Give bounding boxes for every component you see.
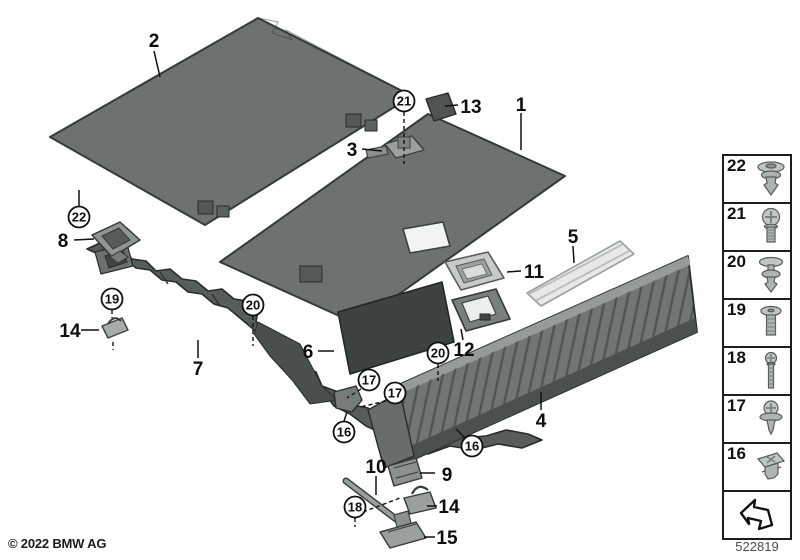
callout-16a-circled[interactable]: 16 <box>334 422 355 443</box>
legend-item-16[interactable]: 16 <box>722 442 792 492</box>
callout-6[interactable]: 6 <box>303 342 314 363</box>
callout-15[interactable]: 15 <box>436 528 458 549</box>
legend-item-18[interactable]: 18 <box>722 346 792 396</box>
part-15-cover <box>380 522 426 548</box>
leader-2 <box>154 51 160 77</box>
legend-label: 16 <box>727 444 746 464</box>
leader-5 <box>573 246 574 263</box>
svg-text:18: 18 <box>348 500 362 515</box>
part-14-clamp-left <box>102 318 128 338</box>
svg-text:16: 16 <box>337 425 351 440</box>
leader-11 <box>507 271 521 272</box>
leader-13 <box>445 105 458 106</box>
leader-12 <box>461 329 463 340</box>
callout-14-left[interactable]: 14 <box>59 321 81 342</box>
legend-label: 20 <box>727 252 746 272</box>
pan-head-screw-icon <box>750 206 790 250</box>
legend-item-17[interactable]: 17 <box>722 394 792 444</box>
legend-label: 22 <box>727 156 746 176</box>
callout-11[interactable]: 11 <box>524 262 545 283</box>
callout-7[interactable]: 7 <box>193 359 204 380</box>
callout-4[interactable]: 4 <box>536 411 547 432</box>
callout-12[interactable]: 12 <box>453 340 474 361</box>
legend-item-21[interactable]: 21 <box>722 202 792 252</box>
svg-text:16: 16 <box>465 439 479 454</box>
part-14-clamp-bottom <box>404 487 436 514</box>
svg-text:19: 19 <box>105 292 119 307</box>
callout-13[interactable]: 13 <box>460 97 481 118</box>
callout-9[interactable]: 9 <box>442 465 453 486</box>
exploded-parts-diagram: 2 8 3 13 1 5 11 6 7 14 12 4 10 9 14 15 2… <box>0 0 800 560</box>
long-screw-icon <box>750 350 790 394</box>
copyright-notice: © 2022 BMW AG <box>8 536 106 551</box>
push-rivet-icon <box>750 158 790 202</box>
callout-20b-circled[interactable]: 20 <box>428 343 449 364</box>
callout-5[interactable]: 5 <box>568 227 579 248</box>
legend-item-reference[interactable] <box>722 490 792 540</box>
diagram-number: 522819 <box>722 539 792 554</box>
callout-1[interactable]: 1 <box>516 95 527 116</box>
callout-8[interactable]: 8 <box>58 231 69 252</box>
callout-20a-circled[interactable]: 20 <box>243 295 264 316</box>
callout-21-circled[interactable]: 21 <box>394 91 415 112</box>
legend-label: 21 <box>727 204 746 224</box>
washer-screw-icon <box>750 398 790 442</box>
part-12-handle-frame <box>452 289 510 331</box>
callout-19-circled[interactable]: 19 <box>102 289 123 310</box>
callout-17a-circled[interactable]: 17 <box>359 370 380 391</box>
legend-label: 18 <box>727 348 746 368</box>
leader-8 <box>74 239 94 240</box>
leader-16a <box>344 412 347 421</box>
svg-text:17: 17 <box>388 386 402 401</box>
legend-label: 19 <box>727 300 746 320</box>
reference-arrow-icon <box>736 494 776 538</box>
expanding-rivet-icon <box>750 254 790 298</box>
svg-text:21: 21 <box>397 94 411 109</box>
callout-17b-circled[interactable]: 17 <box>385 383 406 404</box>
legend-label: 17 <box>727 396 746 416</box>
svg-text:20: 20 <box>246 298 260 313</box>
callout-10[interactable]: 10 <box>365 457 386 478</box>
callout-2[interactable]: 2 <box>149 31 160 52</box>
callout-14-bottom[interactable]: 14 <box>438 497 460 518</box>
clip-nut-icon <box>750 446 790 490</box>
parts-diagram-page: 2 8 3 13 1 5 11 6 7 14 12 4 10 9 14 15 2… <box>0 0 800 560</box>
legend-item-20[interactable]: 20 <box>722 250 792 300</box>
legend-item-19[interactable]: 19 <box>722 298 792 348</box>
callout-3[interactable]: 3 <box>347 140 358 161</box>
svg-text:20: 20 <box>431 346 445 361</box>
svg-text:22: 22 <box>72 210 86 225</box>
part-11-handle-trim <box>445 252 504 290</box>
callout-18-circled[interactable]: 18 <box>345 497 366 518</box>
flat-head-screw-icon <box>750 302 790 346</box>
svg-text:17: 17 <box>362 373 376 388</box>
callout-22-circled[interactable]: 22 <box>69 207 90 228</box>
legend-item-22[interactable]: 22 <box>722 154 792 204</box>
callout-16b-circled[interactable]: 16 <box>462 436 483 457</box>
mat-clip <box>300 266 322 282</box>
